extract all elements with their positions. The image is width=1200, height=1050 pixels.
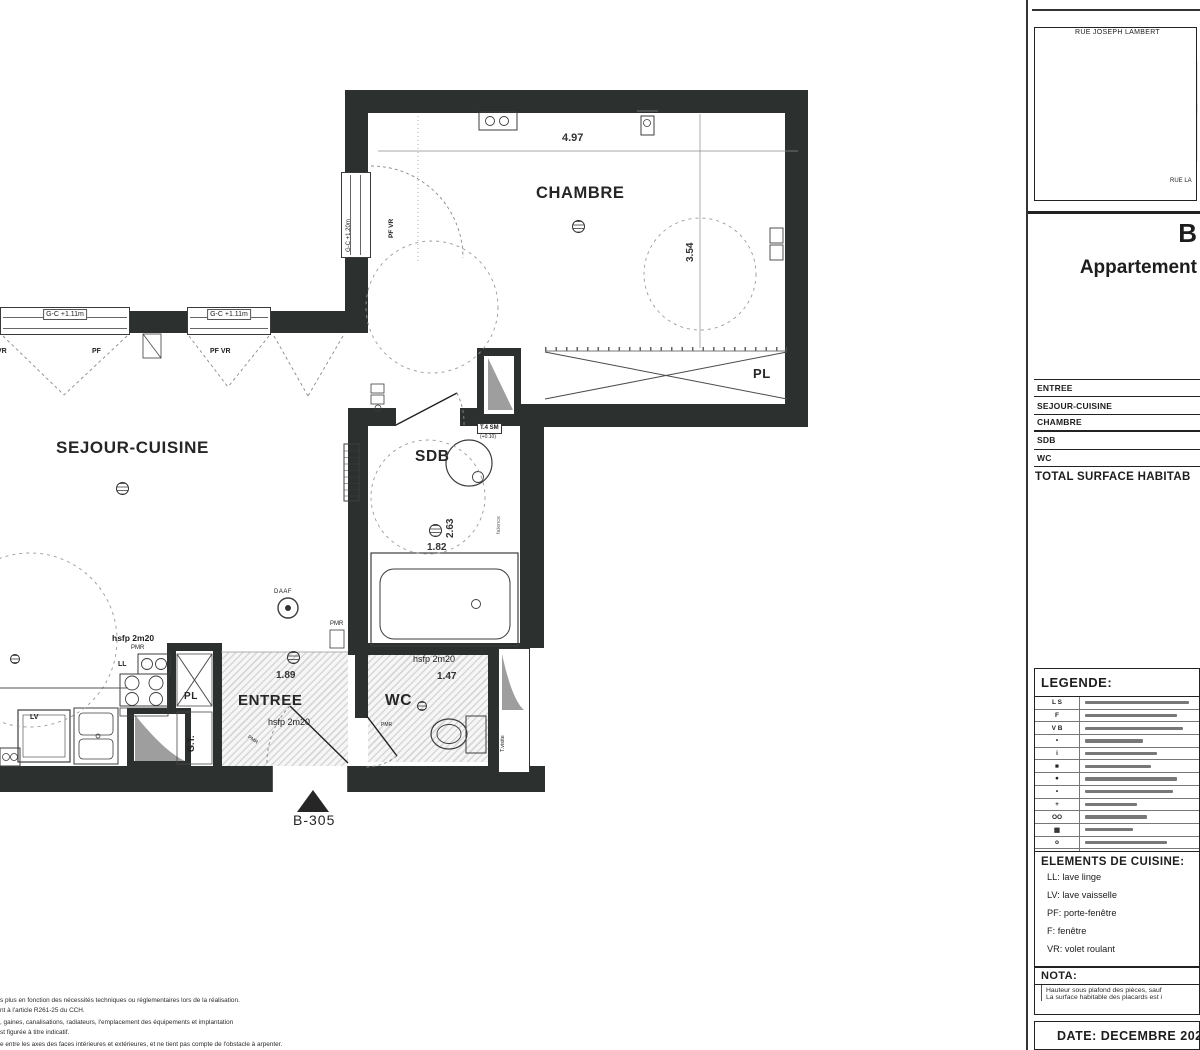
legend-row: + [1035, 799, 1199, 812]
clearance-circles [0, 218, 756, 727]
room-label-chambre: CHAMBRE [536, 184, 625, 203]
washer-label: LL [118, 661, 127, 668]
fine-print-line: , gaines, canalisations, radiateurs, l'e… [0, 1019, 233, 1026]
surface-table-row: WC [1034, 450, 1200, 467]
room-label-wc: WC [385, 692, 412, 710]
unit-number-label: B-305 [293, 812, 335, 828]
daaf-smoke-detector-label: DAAF [274, 589, 292, 595]
abbreviation-item: VR: volet roulant [1047, 944, 1199, 954]
legend-row: L S [1035, 697, 1199, 710]
sheet-title-apartment: Appartement [1040, 257, 1197, 279]
legend-row: ● [1035, 773, 1199, 786]
french-door-label: PF [92, 348, 101, 355]
ceiling-light-symbol [287, 651, 300, 664]
legend-row: • [1035, 735, 1199, 748]
french-door-shutter-label: PF VR [210, 348, 231, 355]
surface-table-row: SEJOUR-CUISINE [1034, 397, 1200, 414]
room-label-sdb: SDB [415, 448, 450, 466]
surface-room: CHAMBRE [1037, 417, 1082, 427]
dim-chambre-height: 3.54 [685, 243, 696, 262]
closet-label: PL [184, 691, 198, 702]
surface-room: ENTREE [1037, 383, 1073, 393]
title-block-top-rule [1032, 9, 1200, 11]
nota-title: NOTA: [1035, 968, 1199, 985]
fine-print-line: s plus en fonction des nécessités techni… [0, 997, 240, 1004]
dishwasher-label: LV [30, 714, 38, 721]
floor-plan-sheet: G-C +1.11m G-C +1.11m G-C +1.20m [0, 0, 1200, 1050]
ceiling-height-note: hsfp 2m20 [112, 633, 154, 643]
surface-table-row: CHAMBRE [1034, 415, 1200, 432]
abbreviation-item: LL: lave linge [1047, 872, 1199, 882]
legend-symbol: OO [1035, 811, 1080, 823]
title-block-frame-line [1026, 0, 1028, 1050]
fine-print-line: st figurée à titre indicatif. [0, 1029, 69, 1036]
fine-print-line: e entre les axes des faces intérieures e… [0, 1041, 282, 1048]
legend-box: LEGENDE: L S F V B • i ■ ● • + OO ▦ o O [1034, 668, 1200, 852]
legend-symbol: • [1035, 786, 1080, 798]
legend-desc-illegible [1085, 752, 1157, 755]
site-map-box [1034, 27, 1197, 201]
legend-row: i [1035, 748, 1199, 761]
ceiling-light-symbol [10, 654, 20, 664]
surface-room: SEJOUR-CUISINE [1037, 401, 1112, 411]
fine-print-line: nt à l'article R261-25 du CCH. [0, 1007, 85, 1014]
surface-room: WC [1037, 453, 1052, 463]
ceiling-light-symbol [429, 524, 442, 537]
legend-desc-illegible [1085, 727, 1183, 730]
dim-lines [0, 114, 798, 688]
abbreviation-item: LV: lave vaisselle [1047, 890, 1199, 900]
legend-symbol: ● [1035, 773, 1080, 785]
gt-shaft-label: G.T. [186, 735, 196, 752]
legend-row: ▦ [1035, 824, 1199, 837]
date-label: DATE: DECEMBRE 2020 [1035, 1029, 1200, 1043]
french-door-shutter-label: PF VR [388, 219, 395, 238]
sheet-title-building: B [1100, 218, 1197, 249]
legend-symbol: L S [1035, 697, 1080, 709]
level-tag: (+0.10) [480, 434, 496, 440]
legend-desc-illegible [1085, 790, 1173, 793]
legend-symbol: o [1035, 837, 1080, 849]
legend-desc-illegible [1085, 777, 1177, 780]
pmr-note: PMR [330, 621, 343, 627]
legend-symbol: F [1035, 710, 1080, 722]
legend-symbol: V B [1035, 722, 1080, 734]
legend-row: V B [1035, 722, 1199, 735]
street-name-top: RUE JOSEPH LAMBERT [1075, 29, 1160, 36]
nota-line: La surface habitable des placards est i [1046, 994, 1199, 1001]
legend-row: o [1035, 837, 1199, 850]
room-label-entree: ENTREE [238, 692, 302, 709]
legend-desc-illegible [1085, 739, 1143, 742]
closet-label: PL [753, 366, 771, 381]
ceiling-height-note: hsfp 2m20 [268, 717, 310, 727]
ceiling-light-symbol [572, 220, 585, 233]
pmr-note: PMR [131, 645, 144, 651]
unit-type-tag: T.4 SM [477, 423, 502, 434]
legend-row: ■ [1035, 760, 1199, 773]
total-surface-label: TOTAL SURFACE HABITAB [1035, 471, 1191, 483]
nota-line: Hauteur sous plafond des pièces, sauf [1046, 987, 1199, 994]
legend-symbol: + [1035, 799, 1080, 811]
pmr-note: PMR [381, 722, 392, 728]
surface-table-row: ENTREE [1034, 380, 1200, 397]
legend-desc-illegible [1085, 714, 1177, 717]
ceiling-light-symbol [417, 701, 427, 711]
ceiling-height-note: hsfp 2m20 [413, 654, 455, 664]
kitchen-elements-title: ELEMENTS DE CUISINE: [1041, 856, 1199, 868]
legend-symbol: ▦ [1035, 824, 1080, 836]
legend-desc-illegible [1085, 701, 1189, 704]
room-label-sejour: SEJOUR-CUISINE [56, 438, 209, 458]
t-visite-label: T.visite [500, 735, 506, 752]
legend-symbol: i [1035, 748, 1080, 760]
legend-desc-illegible [1085, 803, 1137, 806]
date-box: DATE: DECEMBRE 2020 [1034, 1021, 1200, 1050]
legend-desc-illegible [1085, 828, 1133, 831]
ceiling-light-symbol [116, 482, 129, 495]
kitchen-elements-box: ELEMENTS DE CUISINE: LL: lave linge LV: … [1034, 851, 1200, 967]
plan-drawing [0, 0, 1200, 1050]
entry-marker-triangle [297, 790, 329, 812]
surface-table-row: SDB [1034, 432, 1200, 449]
legend-desc-illegible [1085, 815, 1147, 818]
dim-chambre-width: 4.97 [562, 132, 583, 144]
abbreviation-item: F: fenêtre [1047, 926, 1199, 936]
legend-desc-illegible [1085, 765, 1151, 768]
legend-symbol: • [1035, 735, 1080, 747]
dim-entree-width: 1.89 [276, 670, 295, 681]
street-name-right: RUE LA [1170, 178, 1192, 184]
abbreviation-item: PF: porte-fenêtre [1047, 908, 1199, 918]
surface-room: SDB [1037, 435, 1056, 445]
shutter-label: VR [0, 348, 7, 355]
legend-title: LEGENDE: [1035, 669, 1199, 697]
legend-symbol: ■ [1035, 760, 1080, 772]
faience-note: faïence [496, 516, 502, 534]
title-divider [1028, 211, 1200, 214]
dim-sdb-width: 1.82 [427, 542, 446, 553]
legend-row: OO [1035, 811, 1199, 824]
nota-box: NOTA: Hauteur sous plafond des pièces, s… [1034, 967, 1200, 1015]
legend-row: F [1035, 710, 1199, 723]
dim-sdb-height: 2.63 [445, 519, 456, 538]
legend-row: • [1035, 786, 1199, 799]
dim-wc-width: 1.47 [437, 671, 456, 682]
legend-desc-illegible [1085, 841, 1167, 844]
door-swings [3, 166, 464, 767]
